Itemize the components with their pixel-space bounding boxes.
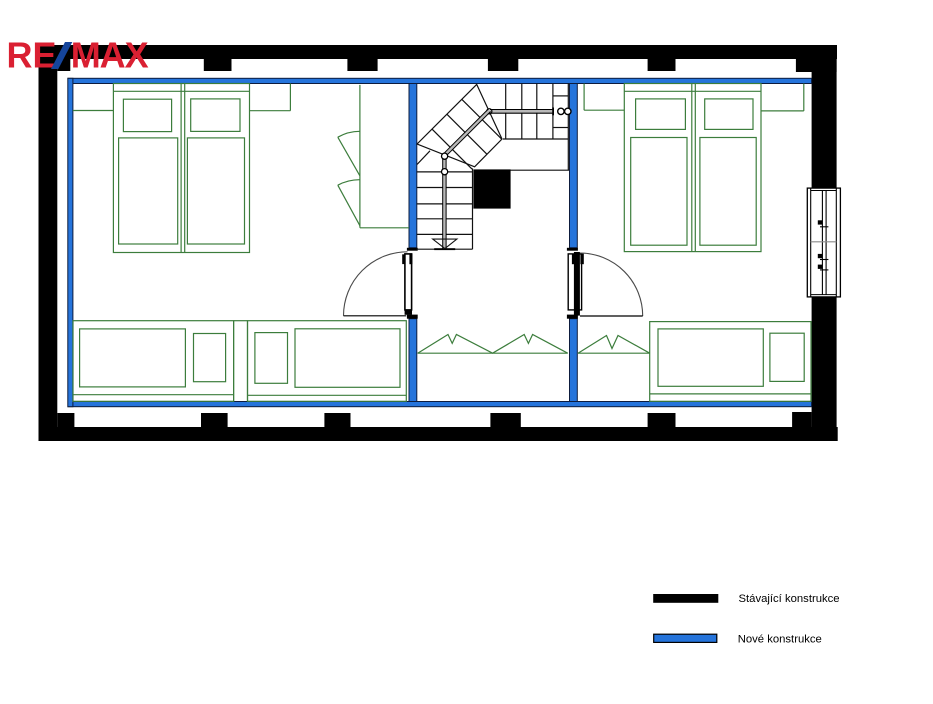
svg-text:Stávající konstrukce: Stávající konstrukce: [739, 593, 840, 605]
svg-text:RE: RE: [7, 35, 57, 76]
svg-text:Nové konstrukce: Nové konstrukce: [738, 633, 822, 645]
svg-text:MAX: MAX: [71, 35, 149, 76]
